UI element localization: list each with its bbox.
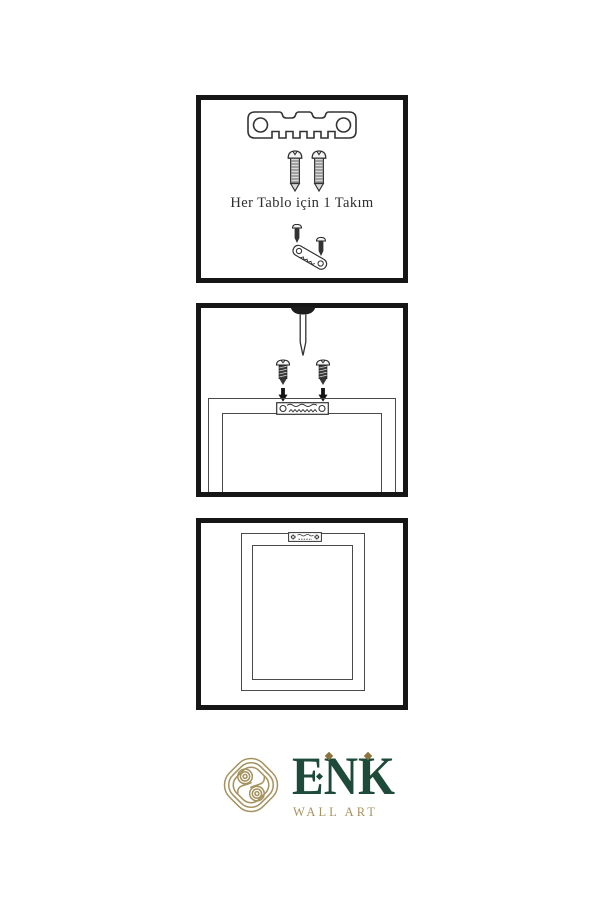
nail-icon (290, 307, 316, 357)
kit-caption: Her Tablo için 1 Takım (201, 195, 403, 212)
screw-icon (286, 150, 304, 192)
brand-name: ENK (292, 752, 398, 802)
panel-mounted-frame (196, 518, 408, 710)
panel-hardware-kit: Her Tablo için 1 Takım (196, 95, 408, 283)
screw-icon (310, 150, 328, 192)
brand-text-block: ENK WALL ART (292, 752, 412, 818)
knot-monogram-icon (218, 747, 284, 823)
panel-install-step (196, 303, 408, 497)
brand-subtitle: WALL ART (293, 805, 412, 820)
hanger-with-screws-icon (283, 224, 339, 274)
screw-icon (315, 359, 331, 386)
frame-back-inner-edge (252, 545, 353, 680)
frame-back-inner-edge (222, 413, 382, 492)
mounted-sawtooth-hanger-icon (288, 532, 322, 542)
screw-icon (275, 359, 291, 386)
mounted-sawtooth-hanger-icon (276, 402, 329, 415)
sawtooth-hanger-icon (247, 111, 357, 139)
